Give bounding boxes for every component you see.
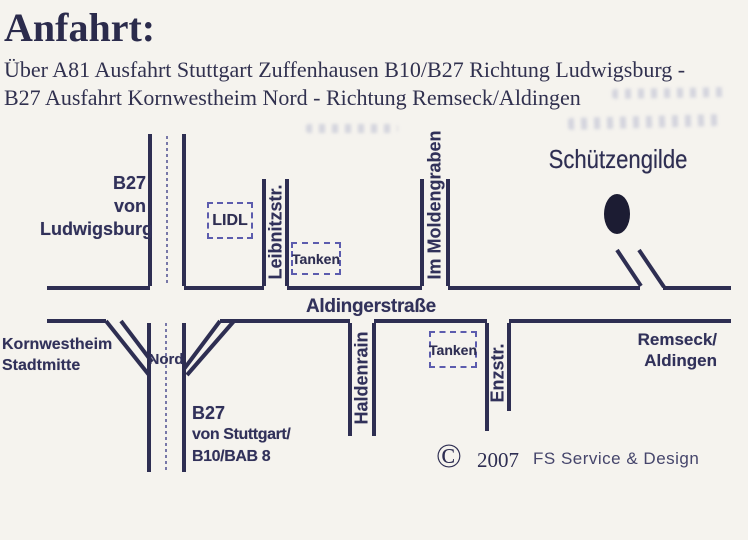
label-aldingerstrasse: Aldingerstraße bbox=[306, 296, 436, 318]
credit-text: FS Service & Design bbox=[533, 449, 699, 469]
lidl-label: LIDL bbox=[212, 212, 248, 230]
copyright-icon: © bbox=[436, 438, 462, 476]
destination-dot bbox=[604, 194, 630, 234]
label-nord-exit: Nord bbox=[149, 351, 184, 368]
scanned-directions-map: Anfahrt: Über A81 Ausfahrt Stuttgart Zuf… bbox=[0, 0, 748, 540]
label-b27-von-stuttgart: B27 von Stuttgart/ B10/BAB 8 bbox=[192, 402, 290, 468]
label-remseck-aldingen: Remseck/ Aldingen bbox=[638, 329, 717, 371]
tanken-south-label: Tanken bbox=[429, 342, 477, 358]
label-leibnitzstrasse: Leibnitzstr. bbox=[266, 184, 287, 279]
lidl-box: LIDL bbox=[207, 202, 253, 239]
tanken-south-box: Tanken bbox=[429, 331, 477, 368]
junction-ramp-west bbox=[106, 321, 152, 375]
road-schuetzengilde-access bbox=[617, 250, 664, 287]
label-enzstrasse: Enzstr. bbox=[488, 343, 509, 402]
tanken-north-label: Tanken bbox=[292, 251, 340, 267]
label-kornwestheim-stadtmitte: Kornwestheim Stadtmitte bbox=[2, 334, 112, 376]
label-haldenrain: Haldenrain bbox=[352, 331, 373, 424]
label-schuetzengilde: Schützengilde bbox=[549, 144, 688, 175]
copyright-year: 2007 bbox=[477, 448, 519, 473]
label-b27-von-ludwigsburg: B27 von Ludwigsburg bbox=[40, 172, 146, 241]
label-im-moldengraben: Im Moldengraben bbox=[425, 130, 446, 279]
road-centerlines bbox=[166, 136, 167, 470]
junction-ramp-east bbox=[184, 321, 234, 375]
tanken-north-box: Tanken bbox=[291, 242, 341, 275]
